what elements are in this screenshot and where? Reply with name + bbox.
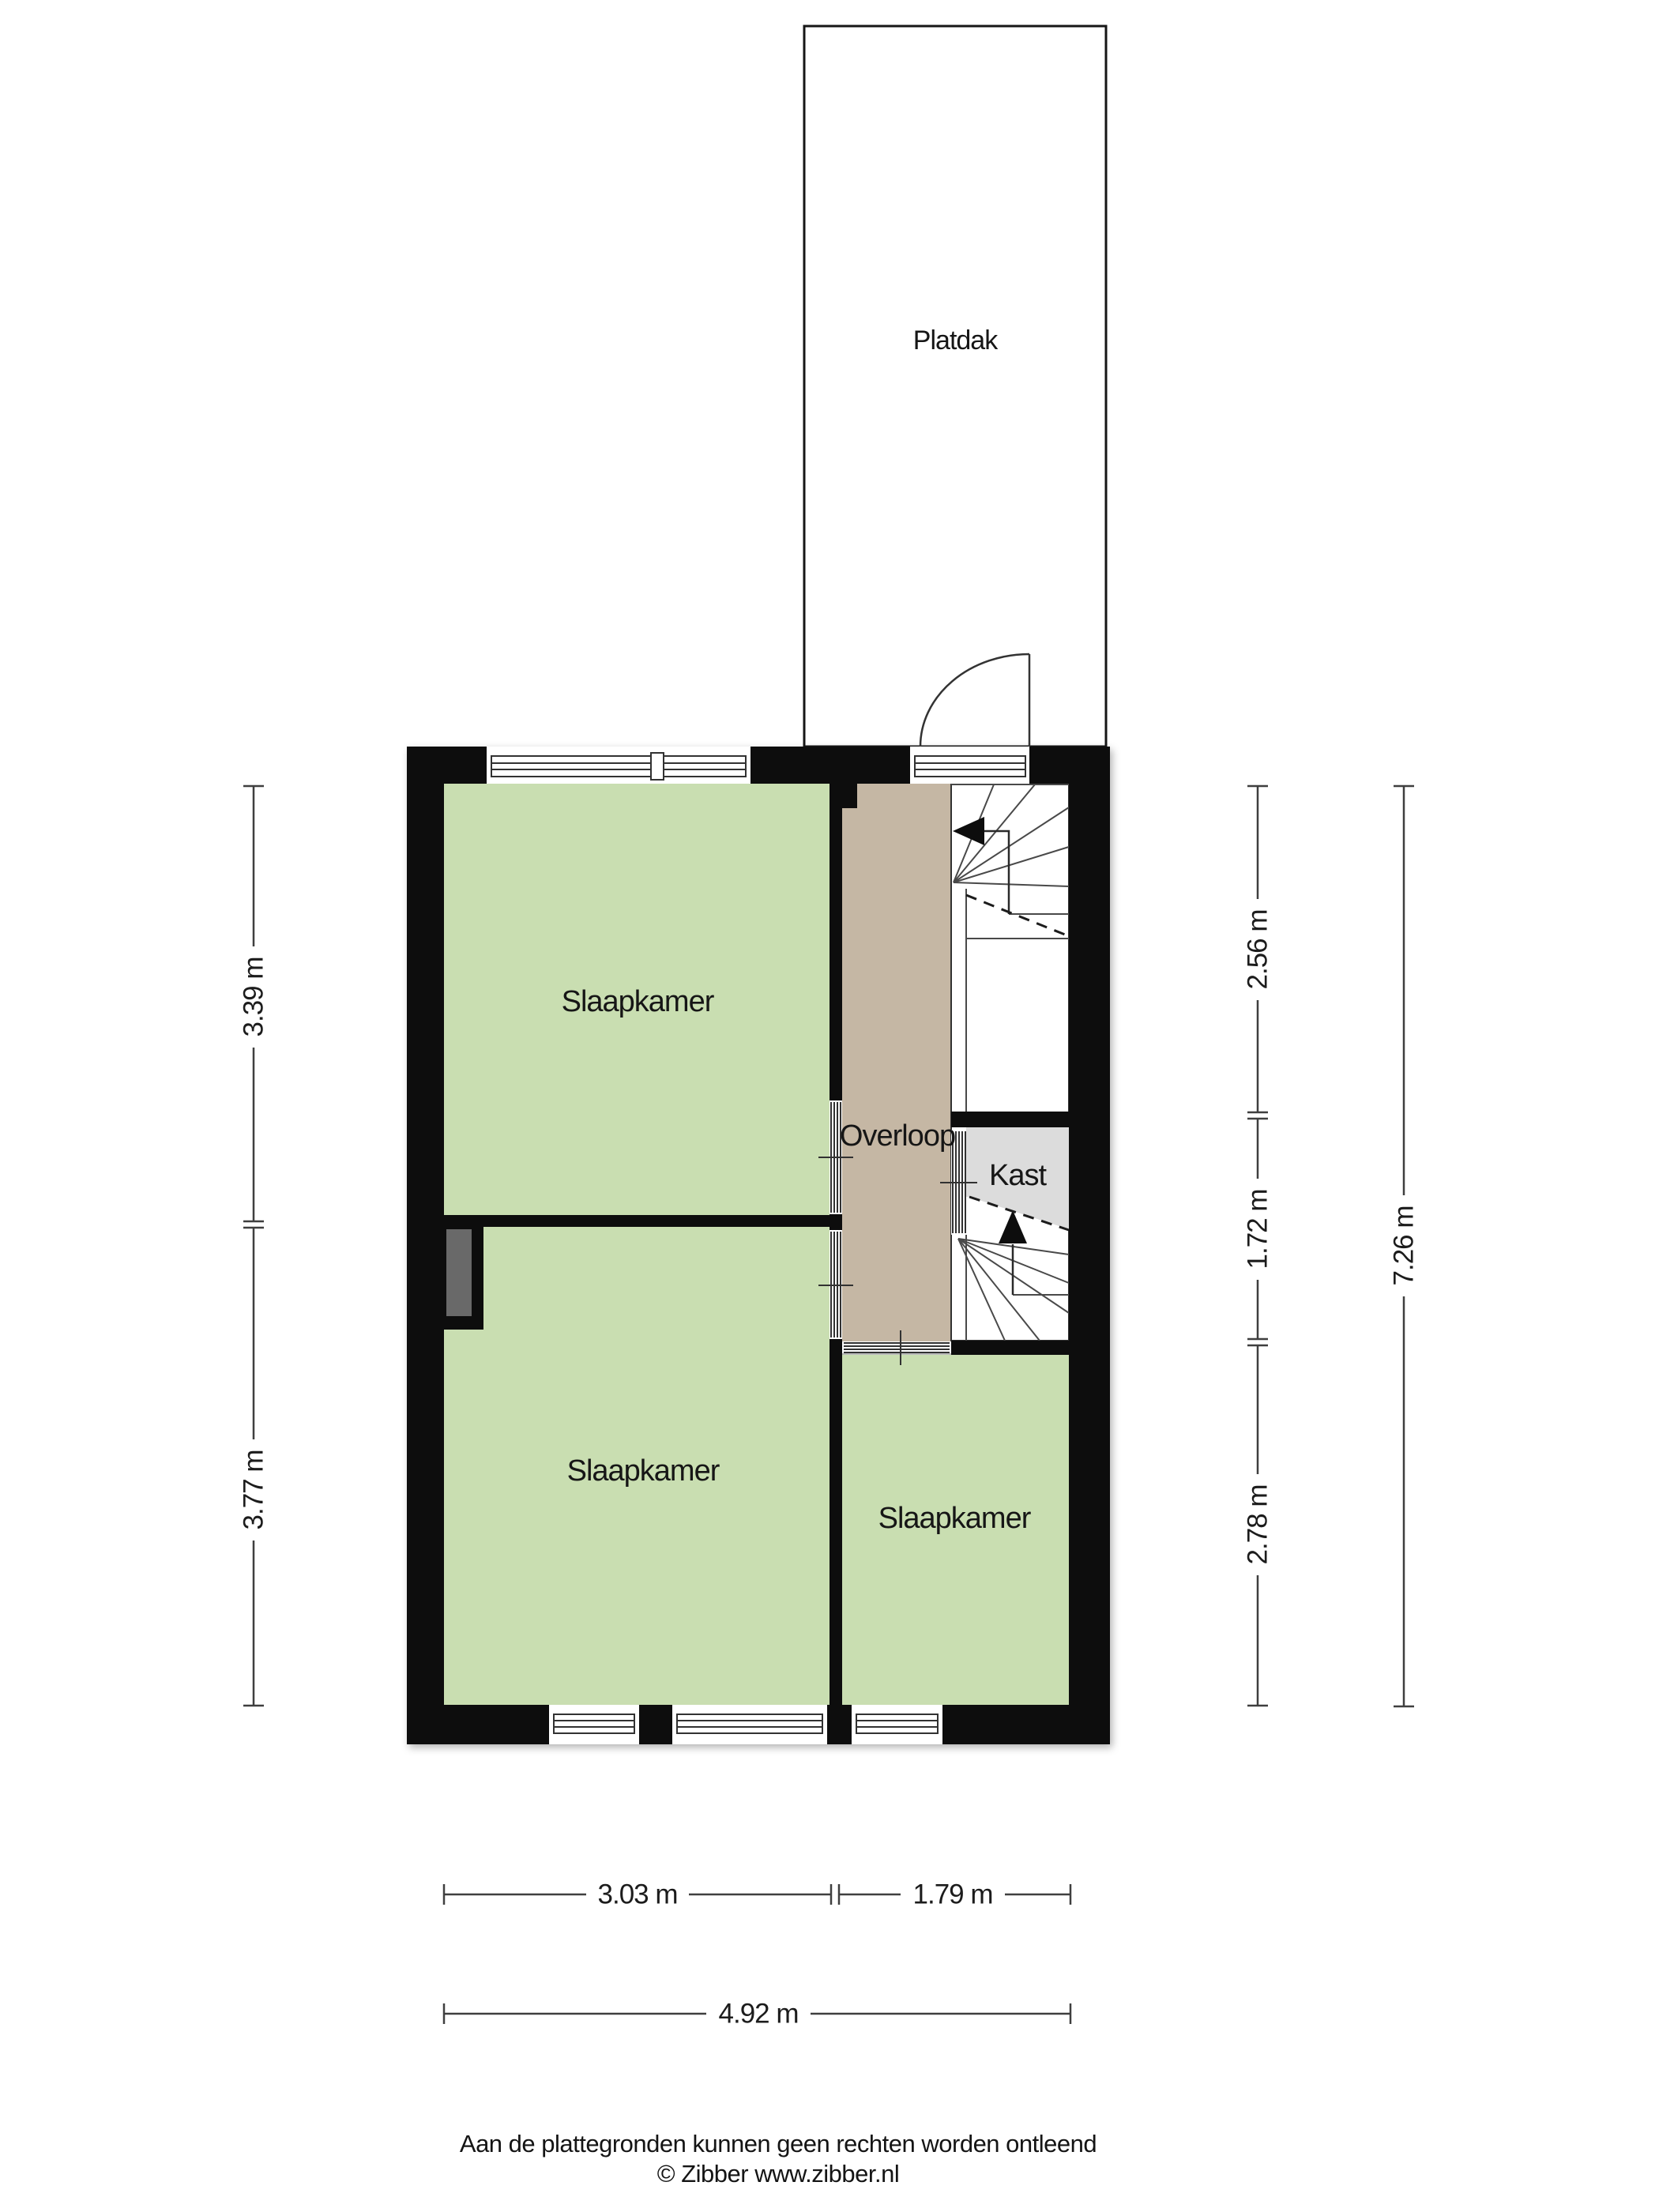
wall-bottom-2 [639, 1705, 672, 1744]
dim-value: 4.92 m [719, 1999, 799, 2030]
label-closet: Kast [989, 1159, 1047, 1192]
wall-jog [829, 784, 857, 808]
dim-value: 3.39 m [239, 957, 269, 1037]
dim-bottom-left: 3.03 m [444, 1879, 831, 1910]
footer-disclaimer: Aan de plattegronden kunnen geen rechten… [460, 2130, 1097, 2157]
wall-above-closet [951, 1112, 1069, 1127]
dim-right-total: 7.26 m [1389, 786, 1420, 1706]
door-sill-frame [915, 756, 1025, 777]
window-frame [677, 1714, 822, 1733]
wall-below-stairs [951, 1341, 1069, 1355]
window-mullion [651, 753, 664, 780]
label-bedroom-bottom-right: Slaapkamer [878, 1502, 1032, 1535]
dim-value: 7.26 m [1389, 1206, 1420, 1286]
window-bottom-right [852, 1705, 942, 1744]
dim-left-upper: 3.39 m [239, 786, 269, 1221]
building: Slaapkamer Slaapkamer Slaapkamer Overloo… [407, 747, 1110, 1744]
stairwell-area [951, 784, 1069, 1341]
dim-value: 1.79 m [913, 1879, 993, 1910]
room-landing [842, 784, 951, 1341]
dim-value: 1.72 m [1243, 1190, 1273, 1270]
duct-shaft [446, 1229, 472, 1316]
wall-between-left-bedrooms [444, 1215, 829, 1227]
wall-right [1069, 747, 1110, 1744]
label-bedroom-top-left: Slaapkamer [562, 985, 715, 1018]
dim-value: 2.56 m [1243, 910, 1273, 990]
wall-bottom-3 [827, 1705, 852, 1744]
wall-top-middle [750, 747, 910, 784]
dim-right-upper: 2.56 m [1243, 786, 1273, 1112]
footer: Aan de plattegronden kunnen geen rechten… [460, 2130, 1097, 2188]
label-bedroom-bottom-left: Slaapkamer [567, 1454, 720, 1488]
dim-bottom-right: 1.79 m [839, 1879, 1070, 1910]
floorplan-canvas: Platdak [0, 0, 1659, 2212]
window-bottom-middle [672, 1705, 827, 1744]
dim-value: 3.77 m [239, 1450, 269, 1530]
dim-right-middle: 1.72 m [1243, 1119, 1273, 1339]
dim-bottom-total: 4.92 m [444, 1999, 1070, 2030]
footer-credit: © Zibber www.zibber.nl [657, 2160, 899, 2188]
wall-left [407, 747, 444, 1744]
flat-roof-label: Platdak [913, 325, 999, 355]
dim-value: 2.78 m [1243, 1485, 1273, 1565]
dim-right-lower: 2.78 m [1243, 1345, 1273, 1706]
flat-roof: Platdak [804, 26, 1106, 748]
wall-bottom-4 [942, 1705, 1110, 1744]
dim-value: 3.03 m [598, 1879, 678, 1910]
label-landing: Overloop [840, 1119, 955, 1153]
roof-door-threshold [910, 747, 1029, 784]
window-frame [554, 1714, 634, 1733]
window-bottom-left [549, 1705, 639, 1744]
wall-bottom-1 [407, 1705, 549, 1744]
window-frame [491, 756, 746, 777]
window-frame [856, 1714, 938, 1733]
dim-left-lower: 3.77 m [239, 1228, 269, 1706]
flat-roof-outline [804, 26, 1106, 747]
window-top [487, 747, 750, 784]
